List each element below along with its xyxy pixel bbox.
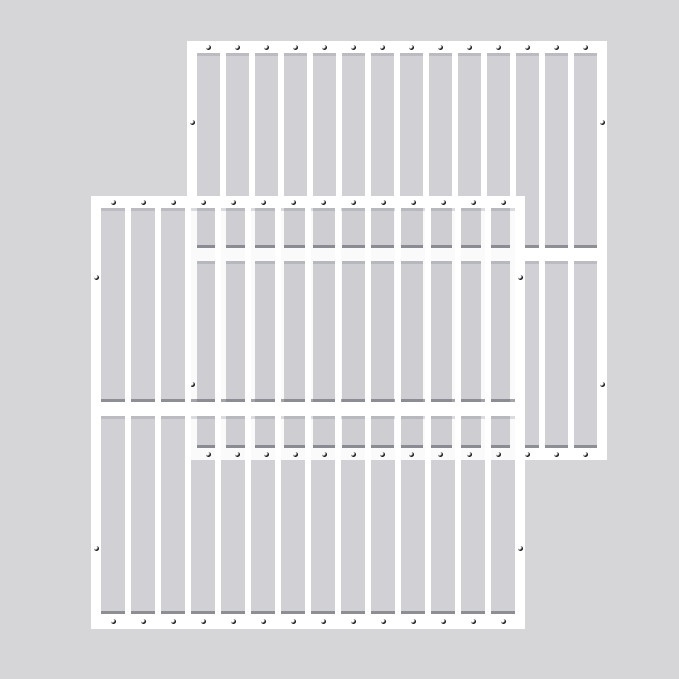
screw-hole	[201, 200, 206, 205]
screw-hole	[321, 200, 326, 205]
screw-hole	[518, 546, 523, 551]
screw-hole	[111, 619, 116, 624]
screw-hole	[441, 200, 446, 205]
screw-hole	[471, 619, 476, 624]
screw-hole	[438, 45, 443, 50]
screw-hole	[583, 45, 588, 50]
screw-hole	[411, 619, 416, 624]
screw-hole	[351, 45, 356, 50]
top-rail	[91, 196, 525, 208]
screw-hole	[467, 45, 472, 50]
screw-hole	[261, 619, 266, 624]
screw-hole	[381, 200, 386, 205]
screw-hole	[321, 619, 326, 624]
screw-hole	[501, 619, 506, 624]
screw-hole	[441, 619, 446, 624]
screw-hole	[351, 200, 356, 205]
screw-hole	[554, 452, 559, 457]
screw-hole	[94, 275, 99, 280]
screw-hole	[471, 200, 476, 205]
screw-hole	[141, 619, 146, 624]
screw-hole	[291, 200, 296, 205]
screw-hole	[600, 120, 605, 125]
screw-hole	[554, 45, 559, 50]
screw-hole	[190, 120, 195, 125]
screw-hole	[261, 200, 266, 205]
screw-hole	[201, 619, 206, 624]
left-stile	[91, 196, 101, 629]
screw-hole	[525, 45, 530, 50]
screw-hole	[381, 619, 386, 624]
front-grille	[91, 196, 525, 629]
screw-hole	[496, 45, 501, 50]
screw-hole	[411, 200, 416, 205]
screw-hole	[583, 452, 588, 457]
right-stile	[515, 196, 525, 629]
screw-hole	[111, 200, 116, 205]
screw-hole	[141, 200, 146, 205]
screw-hole	[94, 546, 99, 551]
screw-hole	[264, 45, 269, 50]
screw-hole	[231, 200, 236, 205]
right-stile	[597, 41, 607, 460]
screw-hole	[291, 619, 296, 624]
product-image-canvas	[0, 0, 679, 679]
screw-hole	[293, 45, 298, 50]
top-rail	[187, 41, 607, 53]
screw-hole	[518, 275, 523, 280]
screw-hole	[171, 619, 176, 624]
bottom-rail	[91, 614, 525, 629]
screw-hole	[322, 45, 327, 50]
screw-hole	[525, 452, 530, 457]
screw-hole	[380, 45, 385, 50]
screw-hole	[206, 45, 211, 50]
screw-hole	[409, 45, 414, 50]
screw-hole	[351, 619, 356, 624]
screw-hole	[600, 382, 605, 387]
screw-hole	[501, 200, 506, 205]
screw-hole	[231, 619, 236, 624]
screw-hole	[235, 45, 240, 50]
mid-rail	[91, 402, 525, 416]
screw-hole	[171, 200, 176, 205]
